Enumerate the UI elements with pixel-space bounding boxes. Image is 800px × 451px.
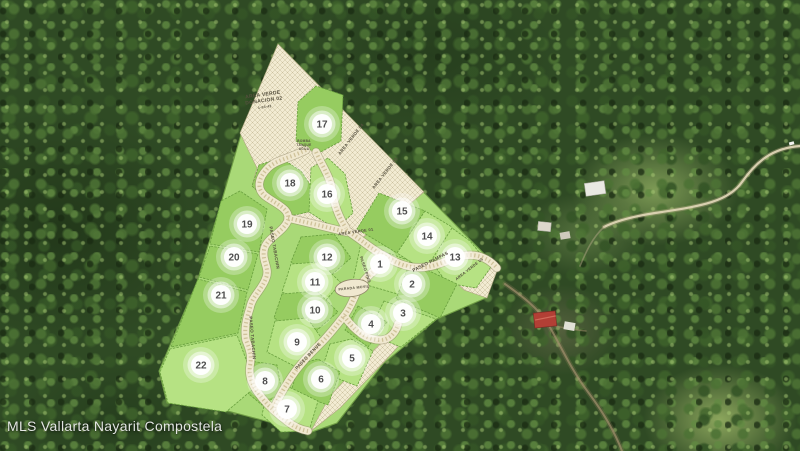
lot-marker-12: 12 xyxy=(309,239,345,275)
lot-number: 6 xyxy=(318,375,324,386)
lot-number: 14 xyxy=(421,232,433,243)
lot-number: 2 xyxy=(409,280,415,291)
lot-number: 17 xyxy=(316,120,328,131)
lot-number: 22 xyxy=(195,361,207,372)
lot-number: 21 xyxy=(215,291,227,302)
lot-number: 11 xyxy=(310,278,321,289)
lot-marker-7: 7 xyxy=(269,391,305,427)
lot-marker-18: 18 xyxy=(272,165,308,201)
background-buildings xyxy=(533,141,794,331)
background-dirt-roads xyxy=(505,146,800,451)
watermark: MLS Vallarta Nayarit Compostela xyxy=(7,418,222,434)
lot-number: 9 xyxy=(294,338,300,349)
lot-number: 20 xyxy=(228,253,240,264)
lot-number: 8 xyxy=(262,377,268,388)
lot-number: 12 xyxy=(321,253,333,264)
lot-marker-21: 21 xyxy=(203,277,239,313)
lot-marker-19: 19 xyxy=(229,206,265,242)
lot-number: 15 xyxy=(396,207,408,218)
lot-marker-16: 16 xyxy=(309,176,345,212)
white-roof-building xyxy=(538,221,552,231)
aerial-map-view: 12345678910111213141516171819202122 AREA… xyxy=(0,0,800,451)
lot-number: 18 xyxy=(284,179,296,190)
lot-number: 10 xyxy=(309,306,321,317)
lot-marker-5: 5 xyxy=(334,340,370,376)
white-roof-building xyxy=(560,231,571,240)
lot-marker-17: 17 xyxy=(304,106,340,142)
lot-marker-6: 6 xyxy=(303,361,339,397)
lot-number: 13 xyxy=(449,253,461,264)
lot-marker-3: 3 xyxy=(385,295,421,331)
lot-number: 4 xyxy=(368,320,374,331)
development-plat-overlay: 12345678910111213141516171819202122 AREA… xyxy=(0,0,800,451)
white-roof-building xyxy=(563,321,575,331)
lot-number: 3 xyxy=(400,309,406,320)
map-label: AGUA xyxy=(299,147,310,151)
lot-number: 16 xyxy=(321,190,333,201)
lot-number: 7 xyxy=(284,405,290,416)
lot-number: 1 xyxy=(377,260,383,271)
lot-marker-20: 20 xyxy=(216,239,252,275)
lot-marker-8: 8 xyxy=(247,363,283,399)
white-roof-building xyxy=(584,181,606,197)
lot-marker-4: 4 xyxy=(353,306,389,342)
lot-marker-15: 15 xyxy=(384,193,420,229)
lot-number: 5 xyxy=(349,354,355,365)
lot-number: 19 xyxy=(241,220,253,231)
lot-marker-22: 22 xyxy=(183,347,219,383)
